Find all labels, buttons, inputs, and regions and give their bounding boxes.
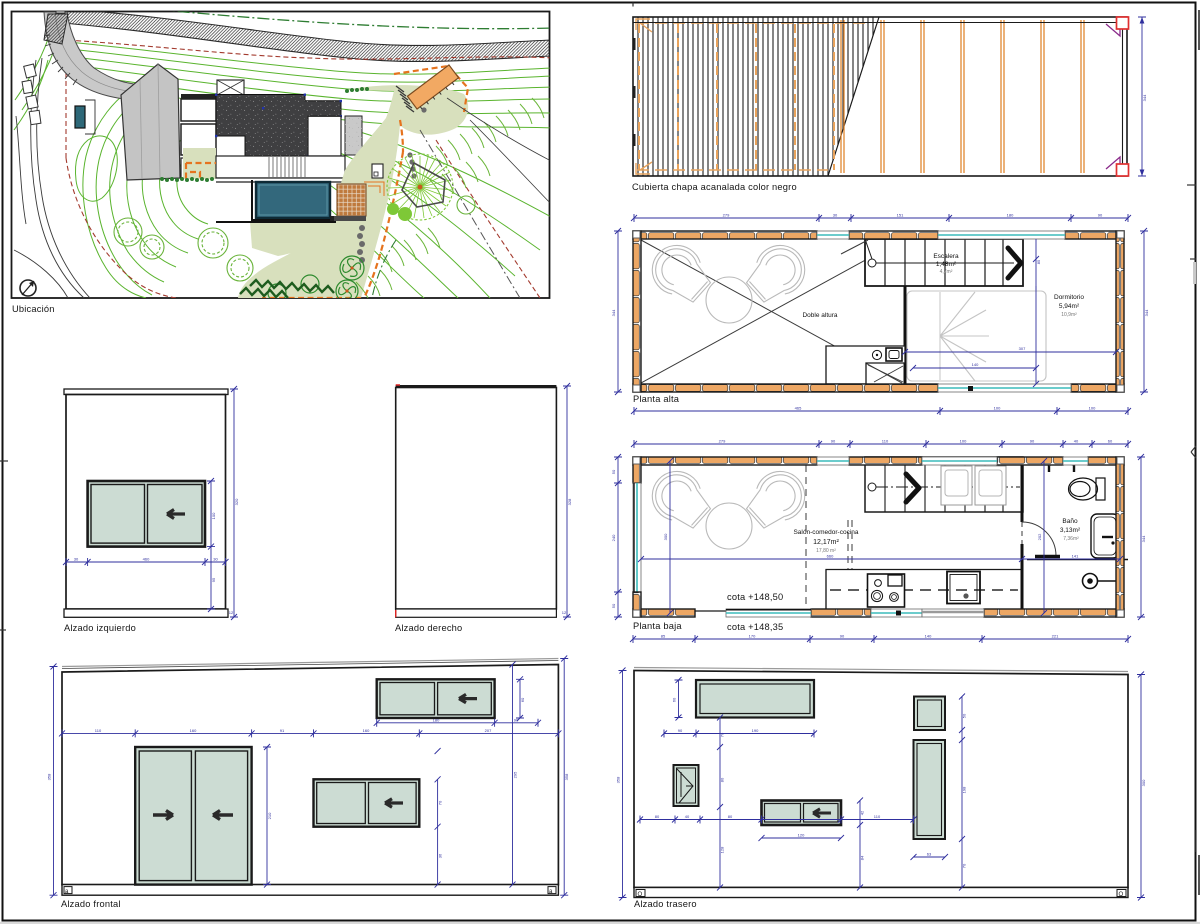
svg-text:60: 60 <box>520 697 525 702</box>
svg-text:300: 300 <box>1141 779 1146 786</box>
svg-text:60: 60 <box>672 697 677 702</box>
svg-text:O: O <box>1119 892 1124 898</box>
svg-text:Ubicación: Ubicación <box>12 304 55 314</box>
svg-text:141: 141 <box>1072 554 1079 559</box>
svg-text:180: 180 <box>433 717 440 722</box>
svg-text:cota +148,35: cota +148,35 <box>727 622 783 632</box>
svg-text:30: 30 <box>833 213 838 218</box>
svg-text:358: 358 <box>616 776 621 783</box>
svg-text:100: 100 <box>211 512 216 519</box>
svg-text:279: 279 <box>723 213 730 218</box>
svg-text:1,48m²: 1,48m² <box>936 261 957 268</box>
svg-text:3,13m²: 3,13m² <box>1060 527 1081 534</box>
svg-text:60: 60 <box>1108 439 1113 444</box>
svg-text:Baño: Baño <box>1062 518 1078 525</box>
svg-text:36: 36 <box>438 853 443 858</box>
svg-text:12: 12 <box>229 610 234 615</box>
svg-text:Escalera: Escalera <box>933 253 959 260</box>
svg-text:30: 30 <box>74 557 79 562</box>
svg-text:50: 50 <box>611 469 616 474</box>
svg-text:344: 344 <box>1141 535 1146 542</box>
svg-text:Planta baja: Planta baja <box>633 621 682 631</box>
svg-text:110: 110 <box>882 439 889 444</box>
svg-text:160: 160 <box>190 728 197 733</box>
svg-text:151: 151 <box>897 213 904 218</box>
svg-text:90: 90 <box>1098 213 1103 218</box>
svg-text:70: 70 <box>720 732 725 737</box>
svg-text:70: 70 <box>962 863 967 868</box>
svg-text:120: 120 <box>798 833 805 838</box>
svg-text:128: 128 <box>720 846 725 853</box>
svg-text:63: 63 <box>927 852 932 857</box>
svg-text:4,7m²: 4,7m² <box>940 269 953 275</box>
svg-text:90: 90 <box>831 439 836 444</box>
svg-text:85: 85 <box>1036 259 1041 264</box>
svg-text:cota +148,50: cota +148,50 <box>727 592 783 602</box>
svg-text:84: 84 <box>860 855 865 860</box>
svg-text:Salón-comedor-cocina: Salón-comedor-cocina <box>793 529 858 536</box>
svg-text:100: 100 <box>994 406 1001 411</box>
svg-text:344: 344 <box>1144 309 1149 316</box>
svg-text:90: 90 <box>1030 439 1035 444</box>
svg-text:198: 198 <box>962 786 967 793</box>
svg-text:328: 328 <box>567 498 572 505</box>
svg-text:358: 358 <box>47 773 52 780</box>
svg-text:207: 207 <box>485 728 492 733</box>
svg-text:Alzado frontal: Alzado frontal <box>61 899 121 909</box>
svg-text:140: 140 <box>925 634 932 639</box>
svg-text:110: 110 <box>95 728 102 733</box>
svg-text:344: 344 <box>1142 94 1147 101</box>
svg-text:12,17m²: 12,17m² <box>813 539 839 546</box>
svg-text:40: 40 <box>1074 439 1079 444</box>
svg-text:80: 80 <box>728 814 733 819</box>
svg-text:190: 190 <box>752 728 759 733</box>
svg-text:Doble altura: Doble altura <box>802 312 837 319</box>
svg-text:30: 30 <box>213 557 218 562</box>
svg-text:279: 279 <box>719 439 726 444</box>
svg-text:210: 210 <box>267 812 272 819</box>
svg-text:100: 100 <box>1089 406 1096 411</box>
svg-text:12: 12 <box>562 610 567 615</box>
svg-text:465: 465 <box>795 406 802 411</box>
svg-text:660: 660 <box>827 554 834 559</box>
svg-text:110: 110 <box>874 814 881 819</box>
svg-text:70: 70 <box>438 800 443 805</box>
svg-text:40: 40 <box>685 814 690 819</box>
svg-text:50: 50 <box>611 603 616 608</box>
svg-text:160: 160 <box>363 728 370 733</box>
svg-text:460: 460 <box>143 557 150 562</box>
svg-text:170: 170 <box>749 634 756 639</box>
svg-text:180: 180 <box>1007 213 1014 218</box>
svg-text:Alzado izquierdo: Alzado izquierdo <box>64 623 136 633</box>
svg-text:202: 202 <box>1037 533 1042 540</box>
svg-text:Alzado trasero: Alzado trasero <box>634 899 697 909</box>
svg-text:240: 240 <box>611 534 616 541</box>
svg-text:5,94m²: 5,94m² <box>1059 303 1080 310</box>
svg-text:85: 85 <box>661 634 666 639</box>
svg-text:320: 320 <box>234 498 239 505</box>
svg-text:221: 221 <box>1052 634 1059 639</box>
svg-text:90: 90 <box>678 728 683 733</box>
svg-text:Dormitorio: Dormitorio <box>1054 294 1084 301</box>
svg-text:91: 91 <box>280 728 285 733</box>
svg-text:Alzado derecho: Alzado derecho <box>395 623 462 633</box>
svg-text:358: 358 <box>564 773 569 780</box>
svg-text:90: 90 <box>840 634 845 639</box>
svg-text:80: 80 <box>720 777 725 782</box>
svg-text:95: 95 <box>211 577 216 582</box>
svg-text:80: 80 <box>655 814 660 819</box>
svg-text:42: 42 <box>860 810 865 815</box>
svg-text:344: 344 <box>611 309 616 316</box>
svg-text:100: 100 <box>960 439 967 444</box>
svg-text:300: 300 <box>663 533 668 540</box>
svg-text:7,36m²: 7,36m² <box>1063 536 1079 542</box>
svg-text:295: 295 <box>513 771 518 778</box>
svg-text:140: 140 <box>972 362 979 367</box>
svg-text:50: 50 <box>962 713 967 718</box>
svg-text:Planta alta: Planta alta <box>633 394 680 404</box>
svg-text:O: O <box>638 892 643 898</box>
svg-text:10,9m²: 10,9m² <box>1061 312 1077 318</box>
svg-text:307: 307 <box>1019 346 1026 351</box>
svg-text:Cubierta chapa acanalada color: Cubierta chapa acanalada color negro <box>632 182 797 192</box>
